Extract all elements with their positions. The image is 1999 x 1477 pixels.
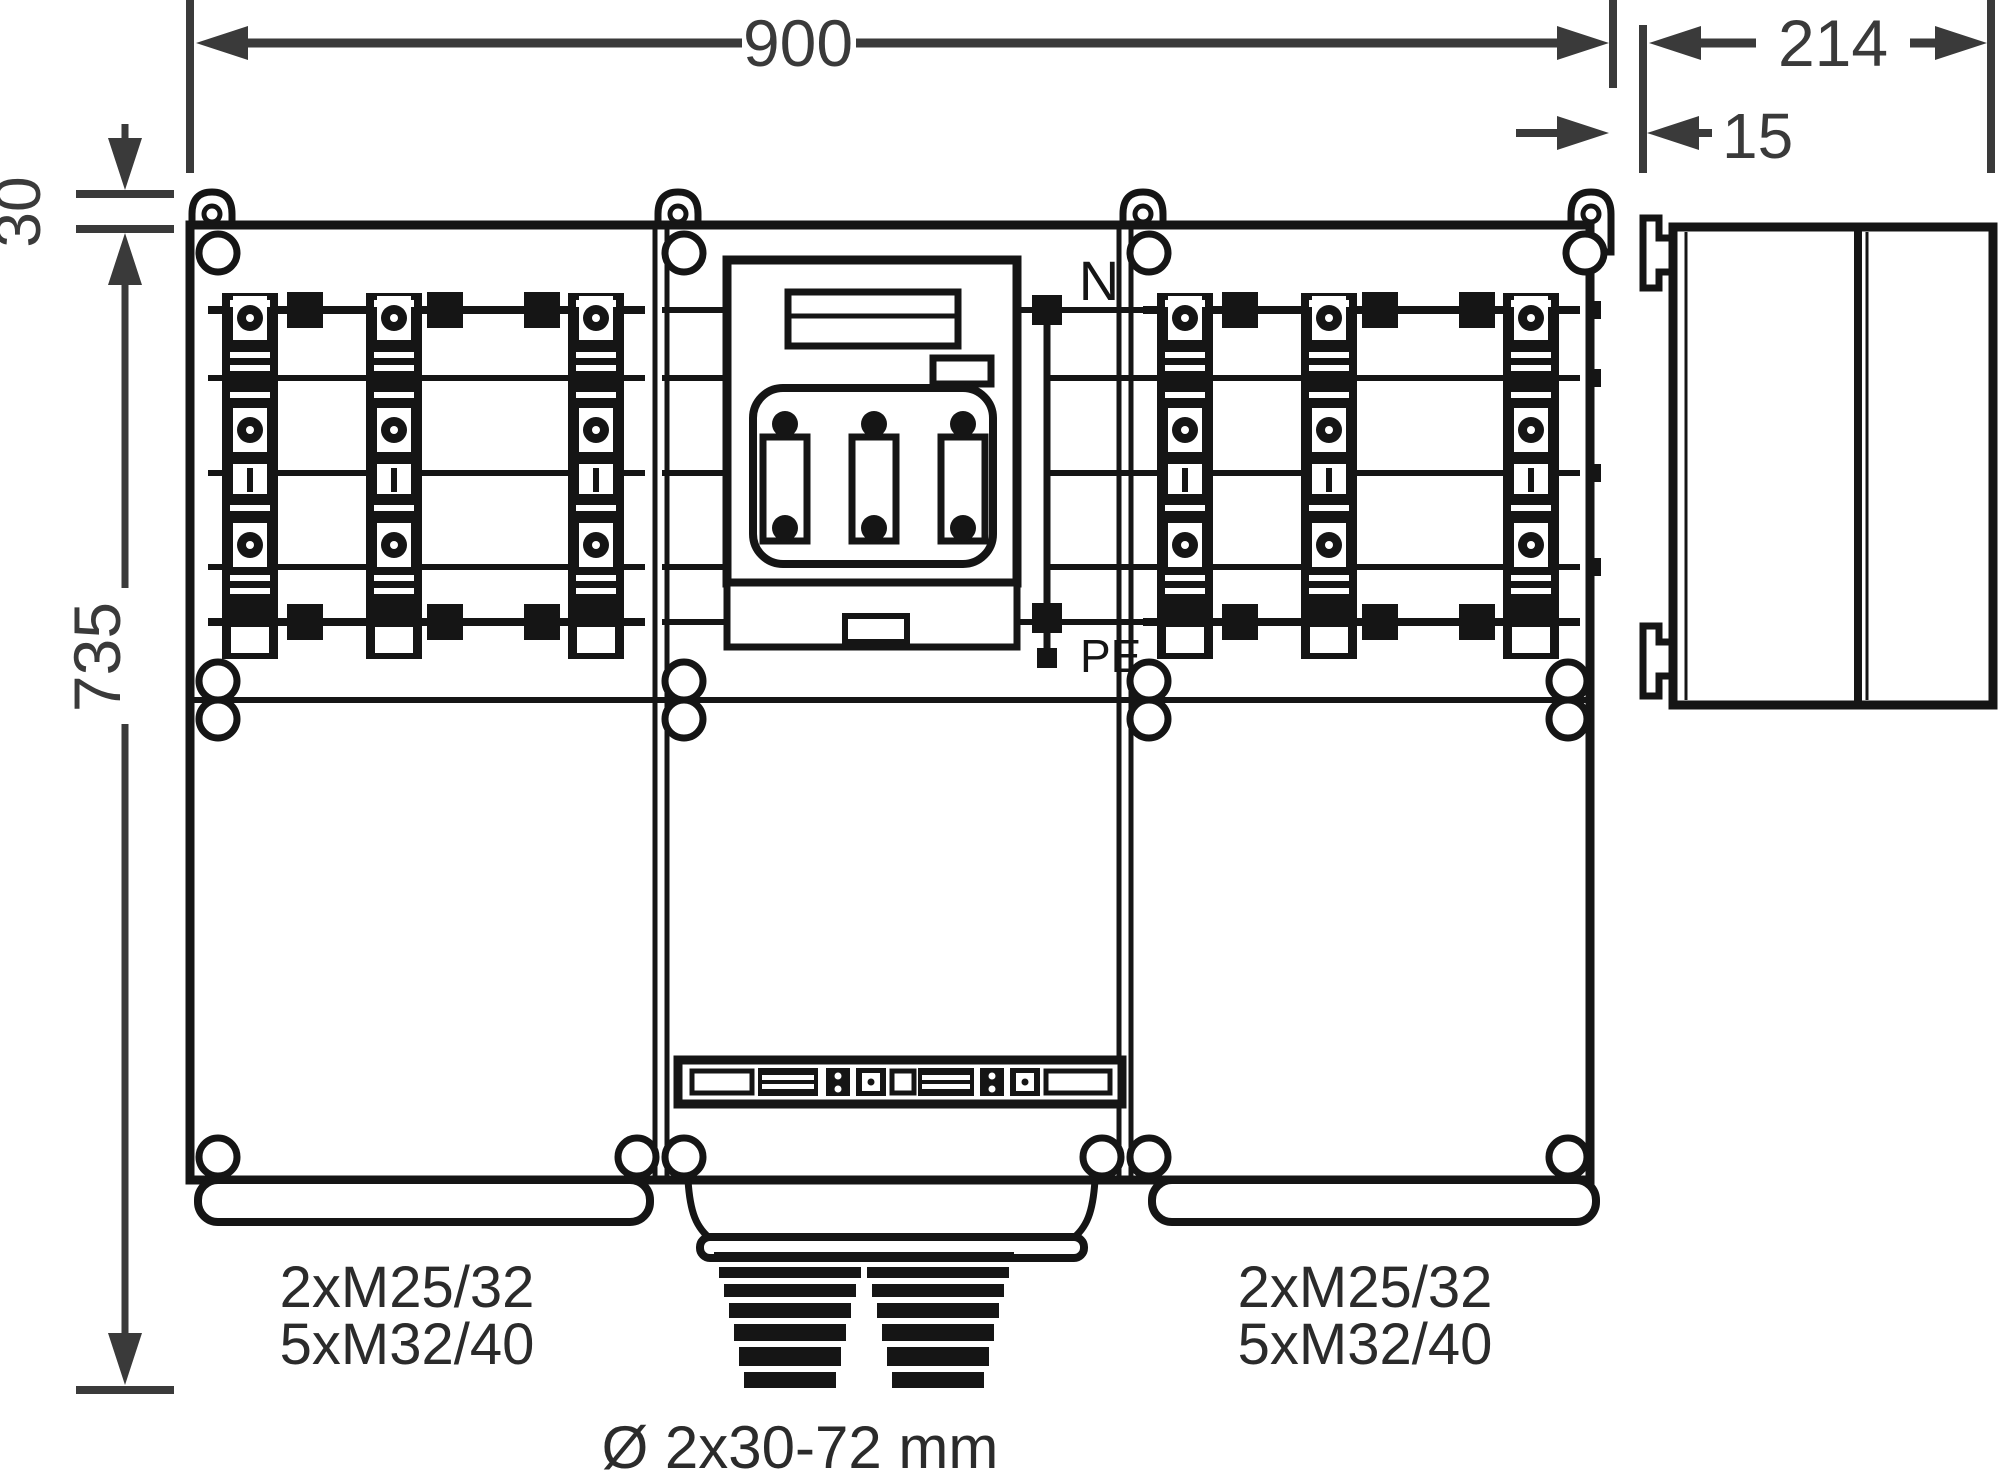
hinge-circle-icon [1549, 700, 1587, 738]
hinge-circle-icon [1549, 1138, 1587, 1176]
dimension-arrow-icon [1647, 116, 1699, 150]
hinge-circle-icon [199, 1138, 237, 1176]
nameplate [933, 358, 991, 384]
hinge-circle-icon [199, 700, 237, 738]
enclosure-front-view: N PE [190, 192, 1611, 1388]
label-window [788, 292, 958, 346]
enclosure-dimension-drawing: 900 214 15 30 735 [0, 0, 1999, 1477]
cable-gland-cone [862, 1252, 1014, 1388]
hinge-circle-icon [665, 662, 703, 700]
dimension-panel-gap: 15 [1516, 100, 1793, 172]
dimension-900-label: 900 [743, 6, 853, 80]
hinge-circle-icon [199, 662, 237, 700]
cable-range-label: Ø 2x30-72 mm [602, 1414, 999, 1477]
dimension-15-label: 15 [1722, 100, 1793, 172]
dimension-arrow-icon [108, 233, 142, 285]
flange-right [1152, 1180, 1596, 1222]
cable-gland-cone [714, 1252, 866, 1388]
flange-left [198, 1180, 650, 1222]
neutral-terminal-block [1032, 295, 1062, 325]
hinge-circle-icon [199, 234, 237, 272]
busbar-end-nub [1588, 301, 1601, 319]
dimension-arrow-icon [1557, 26, 1609, 60]
dimension-total-height: 735 [60, 233, 174, 1390]
dimension-lug-offset: 30 [0, 124, 174, 248]
hinge-circle-icon [1130, 1138, 1168, 1176]
busbar-end-nub [1588, 464, 1601, 482]
dimension-30-label: 30 [0, 176, 54, 247]
gland-label-left-line2: 5xM32/40 [280, 1312, 535, 1377]
neutral-label: N [1079, 249, 1119, 312]
hinge-circle-icon [665, 700, 703, 738]
pe-end-block [1037, 648, 1057, 668]
dimension-arrow-icon [108, 138, 142, 190]
gland-neck [688, 1180, 712, 1240]
gland-label-right-line1: 2xM25/32 [1238, 1255, 1493, 1320]
dimension-arrow-icon [1557, 116, 1609, 150]
gland-label-right-line2: 5xM32/40 [1238, 1312, 1493, 1377]
hinge-circle-icon [1130, 662, 1168, 700]
dimension-214-label: 214 [1778, 6, 1888, 80]
dimension-735-label: 735 [60, 602, 134, 712]
dimension-arrow-icon [1649, 26, 1701, 60]
dimension-arrow-icon [196, 26, 248, 60]
enclosure-side-view [1643, 218, 1993, 705]
dimension-total-width: 900 [190, 0, 1613, 173]
terminal-strip [678, 1060, 1122, 1104]
busbar-end-nub [1588, 558, 1601, 576]
pedestal-window [845, 616, 907, 642]
hinge-circle-icon [1130, 234, 1168, 272]
hinge-circle-icon [665, 234, 703, 272]
hinge-circle-icon [1549, 662, 1587, 700]
hinge-circle-icon [1130, 700, 1168, 738]
gland-label-left-line1: 2xM25/32 [280, 1255, 535, 1320]
dimension-arrow-icon [1935, 26, 1987, 60]
side-view-outline [1673, 227, 1993, 705]
technical-drawing-page: 900 214 15 30 735 [0, 0, 1999, 1477]
pe-terminal-block [1032, 603, 1062, 633]
fuse-switch-disconnector [727, 260, 1017, 647]
hinge-circle-icon [618, 1138, 656, 1176]
dimension-arrow-icon [108, 1333, 142, 1385]
hinge-circle-icon [1083, 1138, 1121, 1176]
hinge-circle-icon [665, 1138, 703, 1176]
cable-entry-assembly [688, 1180, 1095, 1388]
hinge-circle-icon [1566, 234, 1604, 272]
busbar-end-nub [1588, 369, 1601, 387]
gland-neck [1071, 1180, 1095, 1240]
